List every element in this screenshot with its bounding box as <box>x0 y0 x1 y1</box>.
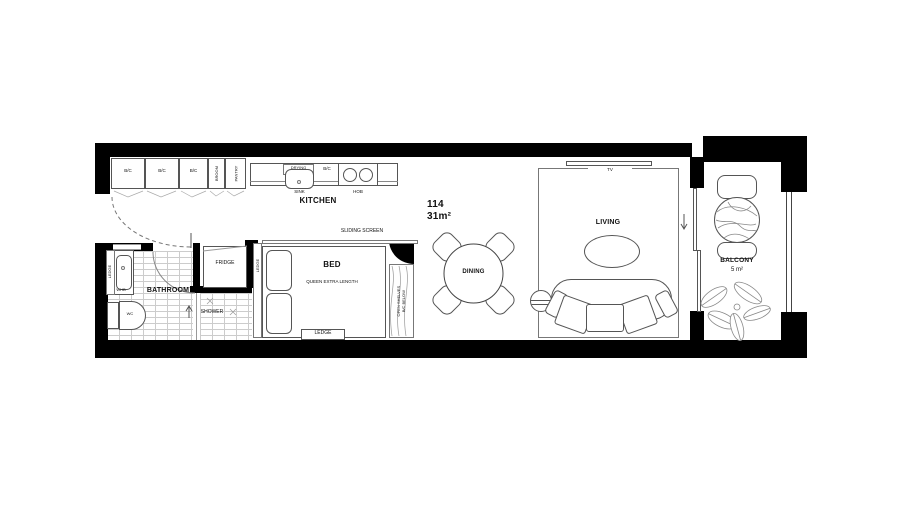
balcony-label: BALCONY <box>705 257 769 264</box>
cabinet-label-pantry: PANTRY <box>233 166 238 182</box>
wall-left-upper <box>95 143 110 194</box>
pillow-top <box>266 250 292 291</box>
drying-label: DRYING <box>283 166 314 171</box>
unit-area: 31m² <box>427 211 477 223</box>
wc-label: WC <box>117 312 143 317</box>
cabinet-label-broom: BROOM <box>214 166 219 181</box>
whb-drain <box>121 266 125 270</box>
sink-drain <box>297 180 301 184</box>
entry-door-swing <box>112 197 191 248</box>
living-label: LIVING <box>578 219 638 227</box>
arrow-down-icon <box>681 214 687 229</box>
sink-label: SINK <box>283 189 316 194</box>
bed-foot-ledge-label: LEDGE <box>301 331 345 337</box>
open-shelves-label: OPEN SHELVES B/C BELOW <box>396 286 406 317</box>
sink <box>285 169 314 189</box>
cabinet-bc-2 <box>145 158 179 189</box>
shower-label: SHOWER <box>192 310 232 316</box>
balcony-table <box>714 197 760 243</box>
wall-balcony-right-upper <box>781 136 807 192</box>
sliding-door-panel-outer <box>693 188 697 251</box>
floor-plan: 114 31m² B/C B/C B/C BROOM PANTRY DRYING… <box>0 0 900 506</box>
cabinet-door-marks <box>114 191 244 197</box>
cabinet-label-3: B/C <box>179 168 208 173</box>
whb-label: WHB <box>109 288 133 293</box>
coffee-table <box>584 235 640 268</box>
fridge <box>203 246 247 288</box>
hob-label: HOB <box>338 189 378 194</box>
bed-label: BED <box>294 260 370 269</box>
whb-basin <box>116 255 132 290</box>
bed-side-ledge-label-wrap: LEDGE <box>252 248 263 284</box>
balcony-area-label: 5 m² <box>705 267 769 274</box>
unit-number: 114 <box>427 199 477 211</box>
plant-icon <box>698 278 773 342</box>
bathroom-label: BATHROOM <box>136 287 200 295</box>
pillow-bottom <box>266 293 292 334</box>
counter-bc-label: B/C <box>318 166 336 171</box>
sliding-door-panel-inner <box>697 250 701 312</box>
hob-burner-left <box>343 168 357 182</box>
cabinet-bc-1 <box>111 158 145 189</box>
cabinet-label-pantry-wrap: PANTRY <box>225 158 246 189</box>
wall-living-balcony-lower <box>690 311 704 342</box>
vanity-ledge-label: LEDGE <box>107 265 112 279</box>
dining-label: DINING <box>443 269 504 276</box>
open-shelves-label-wrap: OPEN SHELVES B/C BELOW <box>389 264 414 338</box>
cabinet-label-2: B/C <box>145 168 179 173</box>
fridge-label: FRIDGE <box>203 261 247 267</box>
kitchen-label: KITCHEN <box>278 196 358 205</box>
hob-burner-right <box>359 168 373 182</box>
cabinet-label-1: B/C <box>111 168 145 173</box>
bathroom-shower-threshold <box>196 293 197 340</box>
cabinet-label-broom-wrap: BROOM <box>208 158 225 189</box>
balcony-balustrade-glass <box>786 192 792 312</box>
bed-side-ledge-label: LEDGE <box>255 259 260 273</box>
vanity-ledge-label-wrap: LEDGE <box>105 253 115 291</box>
shower-floor <box>200 293 252 340</box>
balcony-chair-top <box>717 175 757 199</box>
tv <box>566 161 652 166</box>
sliding-screen-track <box>262 240 418 244</box>
sofa-cushion-center <box>586 304 624 332</box>
tv-label: TV <box>588 167 632 172</box>
wall-bottom <box>95 340 807 358</box>
cabinet-bc-3 <box>179 158 208 189</box>
open-shelves-label-line2: B/C BELOW <box>402 286 407 317</box>
wall-top <box>95 143 692 157</box>
wall-living-balcony-upper <box>690 157 704 188</box>
bed-type-label: QUEEN EXTRA LENGTH <box>282 279 382 284</box>
sliding-screen-label: SLIDING SCREEN <box>312 229 412 235</box>
